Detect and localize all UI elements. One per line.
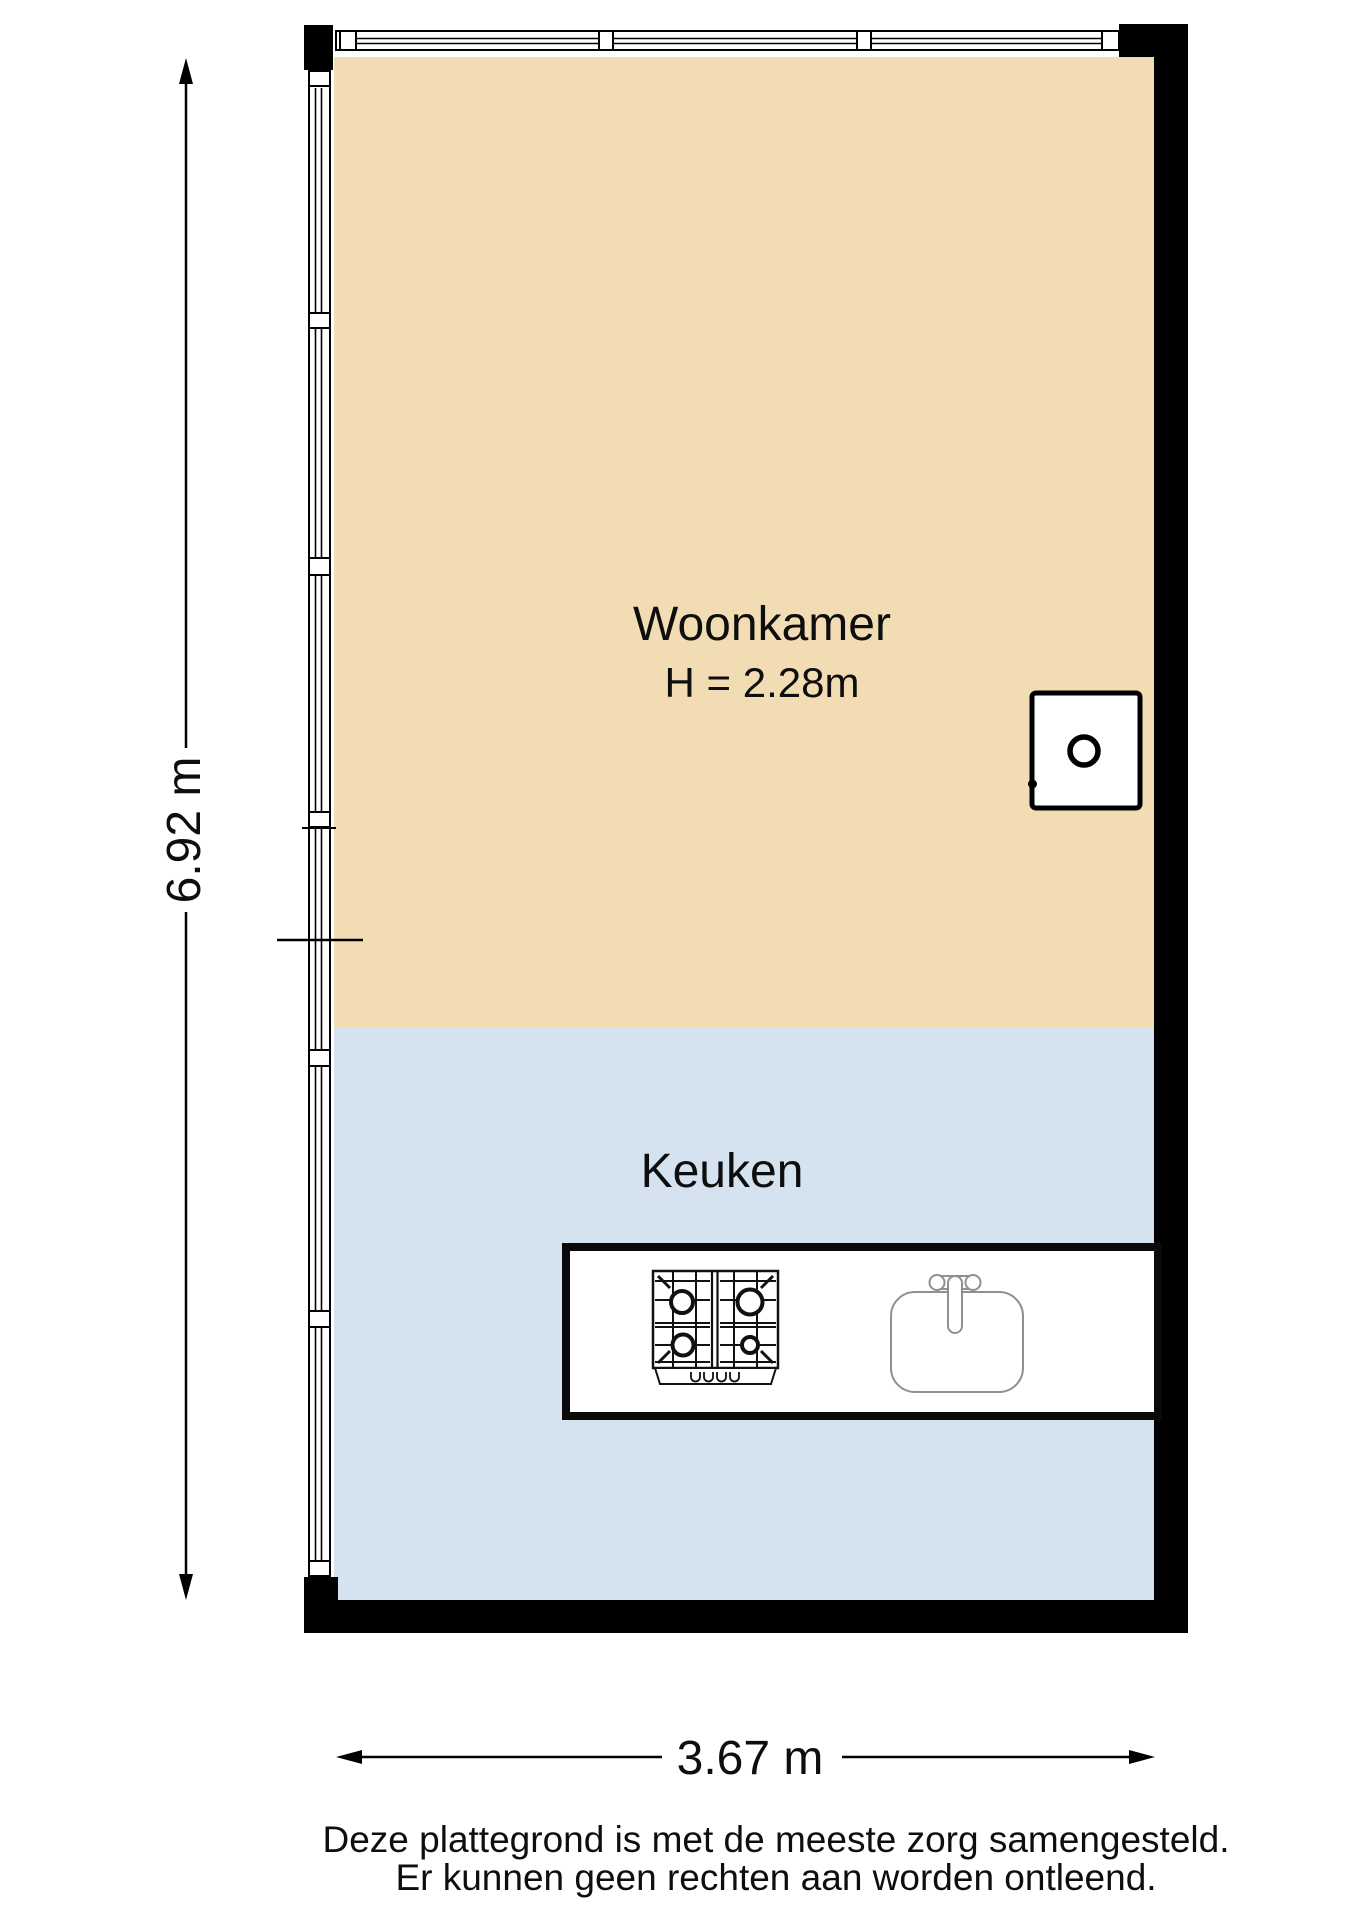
burner (671, 1291, 693, 1313)
boiler-icon (1028, 693, 1140, 808)
window-end-cap (309, 1561, 330, 1576)
window-mullion (309, 1311, 330, 1327)
window-mullion (309, 812, 330, 827)
arrowhead-up (179, 58, 193, 84)
vertical-dimension-label: 6.92 m (159, 680, 211, 980)
window-mullion (309, 1050, 330, 1066)
disclaimer-line-1: Deze plattegrond is met de meeste zorg s… (176, 1820, 1358, 1860)
faucet-knob (966, 1275, 981, 1290)
left-window (309, 70, 330, 1577)
woonkamer-floor (334, 57, 1154, 1028)
floorplan-page: Woonkamer H = 2.28m Keuken 6.92 m 3.67 m… (0, 0, 1358, 1920)
burner (742, 1337, 758, 1353)
boiler-connector-dot (1028, 780, 1037, 789)
top-window (336, 31, 1119, 50)
faucet-knob (930, 1275, 945, 1290)
window-mullion (309, 558, 330, 575)
wall-corner-bottom-left (304, 1577, 338, 1633)
woonkamer-ceiling-height-label: H = 2.28m (562, 661, 962, 705)
woonkamer-label: Woonkamer (562, 599, 962, 651)
burner (738, 1290, 763, 1315)
wall-corner-top-left (304, 25, 333, 70)
keuken-label: Keuken (522, 1146, 922, 1198)
horizontal-dimension-label: 3.67 m (550, 1733, 950, 1785)
window-end-cap (1102, 31, 1119, 50)
arrowhead-down (179, 1574, 193, 1600)
window-mullion (857, 31, 871, 50)
wall-bottom (304, 1600, 1188, 1633)
window-end-cap (340, 31, 356, 50)
arrowhead-right (1129, 1750, 1155, 1764)
window-mullion (599, 31, 613, 50)
arrowhead-left (336, 1750, 362, 1764)
sink-icon (891, 1275, 1023, 1392)
burner (673, 1335, 694, 1356)
window-end-cap (309, 71, 330, 86)
faucet-spout (948, 1276, 962, 1333)
disclaimer-line-2: Er kunnen geen rechten aan worden ontlee… (176, 1858, 1358, 1898)
window-mullion (309, 313, 330, 328)
stove-icon (653, 1271, 778, 1384)
